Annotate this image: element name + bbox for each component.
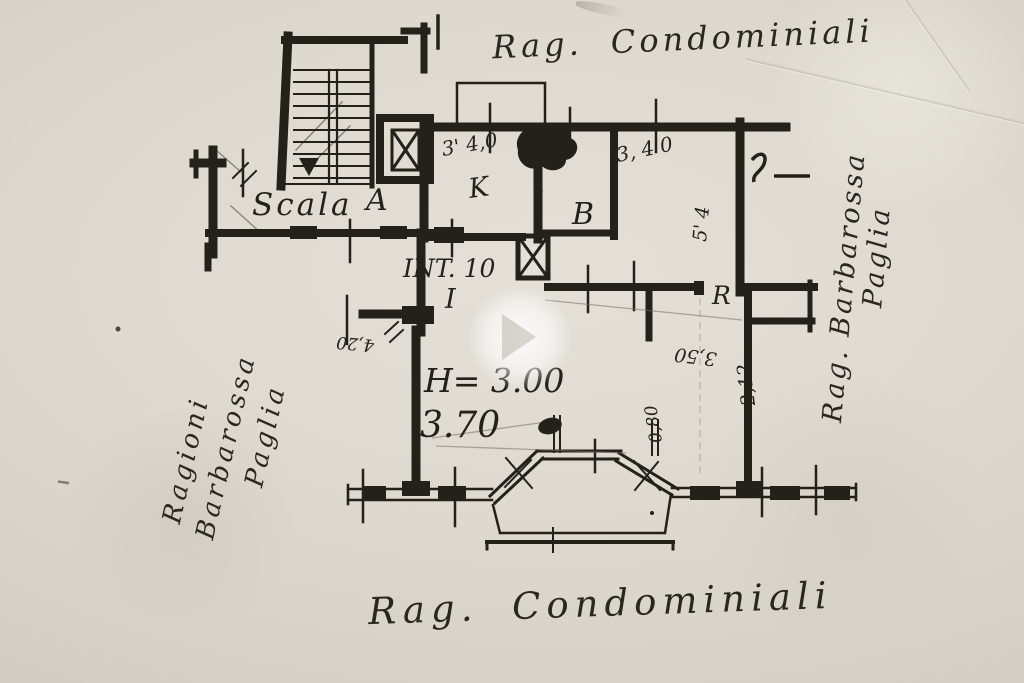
label-stair-letter: A — [363, 183, 388, 218]
stairwell — [281, 16, 438, 186]
dim-width: 3.70 — [420, 405, 500, 446]
label-room-k: K — [466, 171, 493, 205]
dim-right-top: 3, 4 0 — [614, 131, 675, 166]
dim-left-rotated: 4,20 — [335, 332, 376, 355]
watermark-chevron-icon — [502, 314, 536, 360]
label-unit: INT. 10 — [402, 254, 496, 283]
dim-k-top: 3' 4,0 — [440, 127, 500, 160]
dim-r-vertical: 2,12 — [733, 362, 760, 408]
handwritten-scribble — [538, 154, 810, 192]
label-room-r: R — [711, 281, 731, 310]
listing-watermark — [468, 286, 572, 390]
apartment-walls — [347, 83, 814, 490]
dim-r-rotated: 3,50 — [673, 343, 718, 370]
label-scala: Scala — [252, 187, 352, 223]
scanned-floor-plan-page: Scala A K B INT. 10 I R 3' 4,0 3, 4 0 5'… — [0, 0, 1024, 683]
dim-r-vertical2: 0,80 — [641, 404, 667, 445]
label-room-i: I — [444, 284, 457, 315]
label-room-b: B — [571, 197, 594, 232]
dim-right-vertical: 5' 4 — [689, 205, 714, 242]
